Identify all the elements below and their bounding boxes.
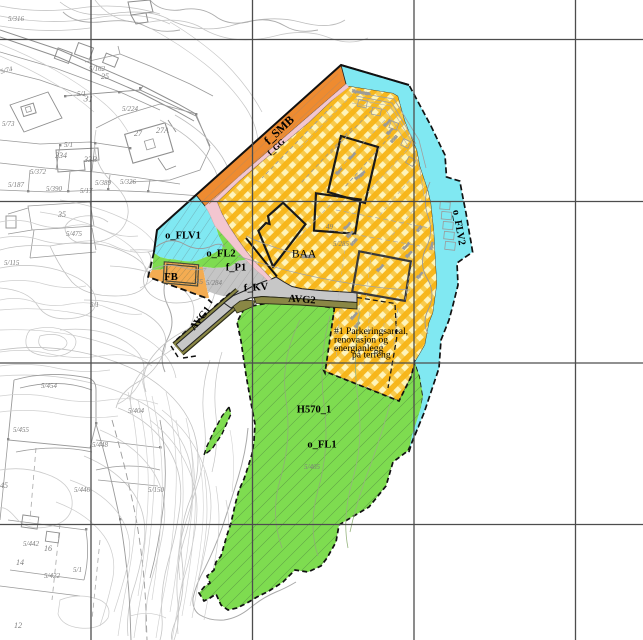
svg-text:45: 45 — [0, 481, 8, 490]
svg-text:5/389: 5/389 — [95, 179, 111, 187]
svg-text:5/372: 5/372 — [30, 168, 46, 176]
svg-text:5/442: 5/442 — [23, 540, 39, 548]
svg-text:5/1: 5/1 — [73, 566, 82, 574]
svg-text:12: 12 — [14, 621, 22, 630]
svg-text:o_FL1: o_FL1 — [307, 440, 336, 451]
svg-text:5/73: 5/73 — [2, 120, 15, 128]
svg-text:5/1: 5/1 — [77, 90, 86, 98]
svg-text:5/390: 5/390 — [46, 185, 62, 193]
svg-text:5/316: 5/316 — [8, 15, 24, 23]
svg-text:H570_1: H570_1 — [297, 405, 331, 416]
svg-text:27A: 27A — [156, 126, 169, 135]
svg-text:5/448: 5/448 — [92, 441, 108, 449]
svg-text:5/1: 5/1 — [64, 141, 73, 149]
svg-text:5/404: 5/404 — [128, 407, 144, 415]
svg-text:5/475: 5/475 — [66, 230, 82, 238]
svg-text:5/285: 5/285 — [333, 240, 349, 248]
svg-text:5/187: 5/187 — [8, 181, 24, 189]
svg-text:f_KV: f_KV — [243, 282, 269, 295]
svg-text:BAA: BAA — [292, 249, 317, 261]
svg-text:45: 45 — [196, 278, 204, 286]
svg-text:27: 27 — [134, 129, 143, 138]
svg-text:25: 25 — [101, 72, 109, 81]
svg-text:5/422: 5/422 — [44, 572, 60, 580]
svg-text:5/115: 5/115 — [4, 259, 20, 267]
svg-text:33B: 33B — [83, 155, 97, 164]
svg-text:5/326: 5/326 — [120, 178, 136, 186]
svg-text:334: 334 — [54, 151, 67, 160]
svg-text:o_FL2: o_FL2 — [206, 249, 235, 260]
svg-text:5/455: 5/455 — [13, 426, 29, 434]
svg-text:5/454: 5/454 — [41, 382, 57, 390]
svg-text:5/150: 5/150 — [148, 486, 164, 494]
svg-text:AVG2: AVG2 — [288, 294, 316, 307]
svg-text:FB: FB — [164, 272, 177, 283]
svg-text:o_FLV1: o_FLV1 — [165, 231, 201, 242]
svg-text:5/405: 5/405 — [304, 463, 320, 471]
svg-text:5/224: 5/224 — [122, 105, 138, 113]
svg-text:5/284: 5/284 — [206, 279, 222, 287]
svg-text:49: 49 — [326, 223, 334, 231]
svg-text:5/446: 5/446 — [74, 486, 90, 494]
svg-text:på terreng: på terreng — [352, 350, 391, 361]
svg-text:16: 16 — [44, 544, 52, 553]
svg-text:f_P1: f_P1 — [226, 263, 246, 274]
svg-text:14: 14 — [16, 558, 24, 567]
svg-text:35: 35 — [57, 210, 66, 219]
